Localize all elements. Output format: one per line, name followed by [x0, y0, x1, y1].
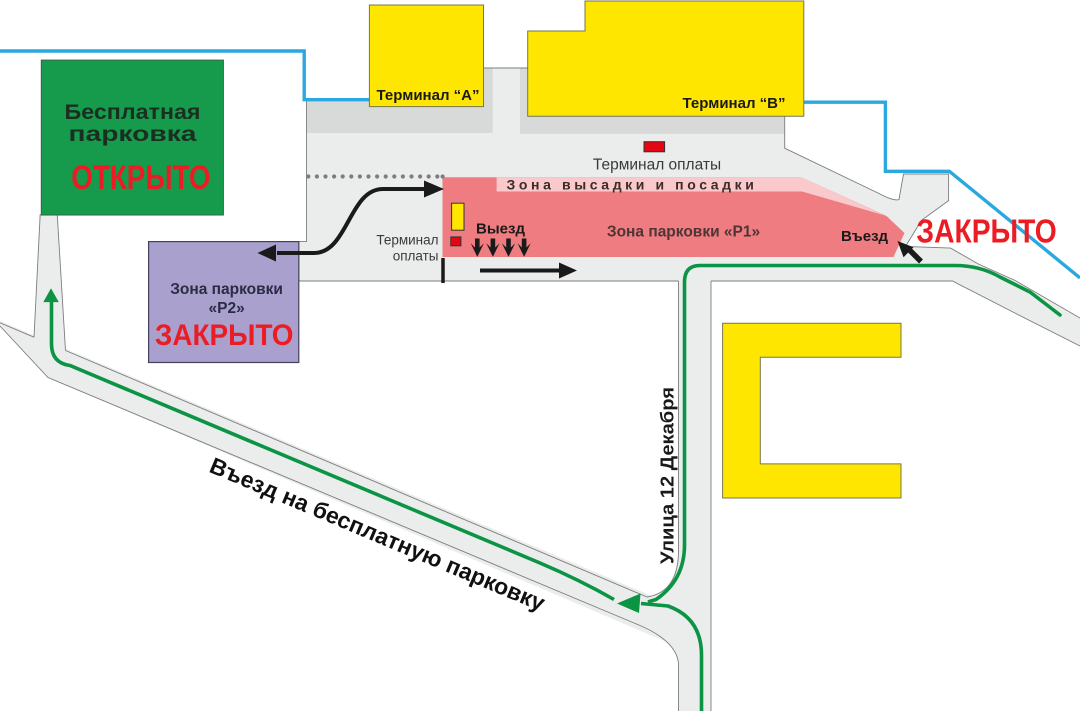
- svg-text:Терминал оплаты: Терминал оплаты: [593, 157, 721, 174]
- svg-text:Въезд: Въезд: [841, 228, 889, 245]
- svg-text:ОТКРЫТО: ОТКРЫТО: [71, 159, 210, 197]
- svg-text:Бесплатная: Бесплатная: [65, 101, 201, 124]
- svg-text:Зона парковки: Зона парковки: [170, 281, 283, 298]
- svg-text:Зона парковки «Р1»: Зона парковки «Р1»: [607, 224, 760, 241]
- svg-text:Терминал: Терминал: [376, 233, 438, 248]
- svg-text:парковка: парковка: [69, 123, 197, 146]
- svg-text:ЗАКРЫТО: ЗАКРЫТО: [155, 319, 294, 352]
- svg-text:Выезд: Выезд: [476, 221, 525, 238]
- svg-text:Терминал “А”: Терминал “А”: [377, 87, 480, 104]
- svg-text:оплаты: оплаты: [393, 249, 439, 264]
- svg-text:ЗАКРЫТО: ЗАКРЫТО: [916, 212, 1056, 249]
- svg-text:Терминал “В”: Терминал “В”: [683, 95, 786, 112]
- svg-text:Улица 12 Декабря: Улица 12 Декабря: [657, 387, 678, 564]
- svg-text:Зона высадки и посадки: Зона высадки и посадки: [507, 176, 758, 192]
- svg-text:«Р2»: «Р2»: [208, 300, 244, 317]
